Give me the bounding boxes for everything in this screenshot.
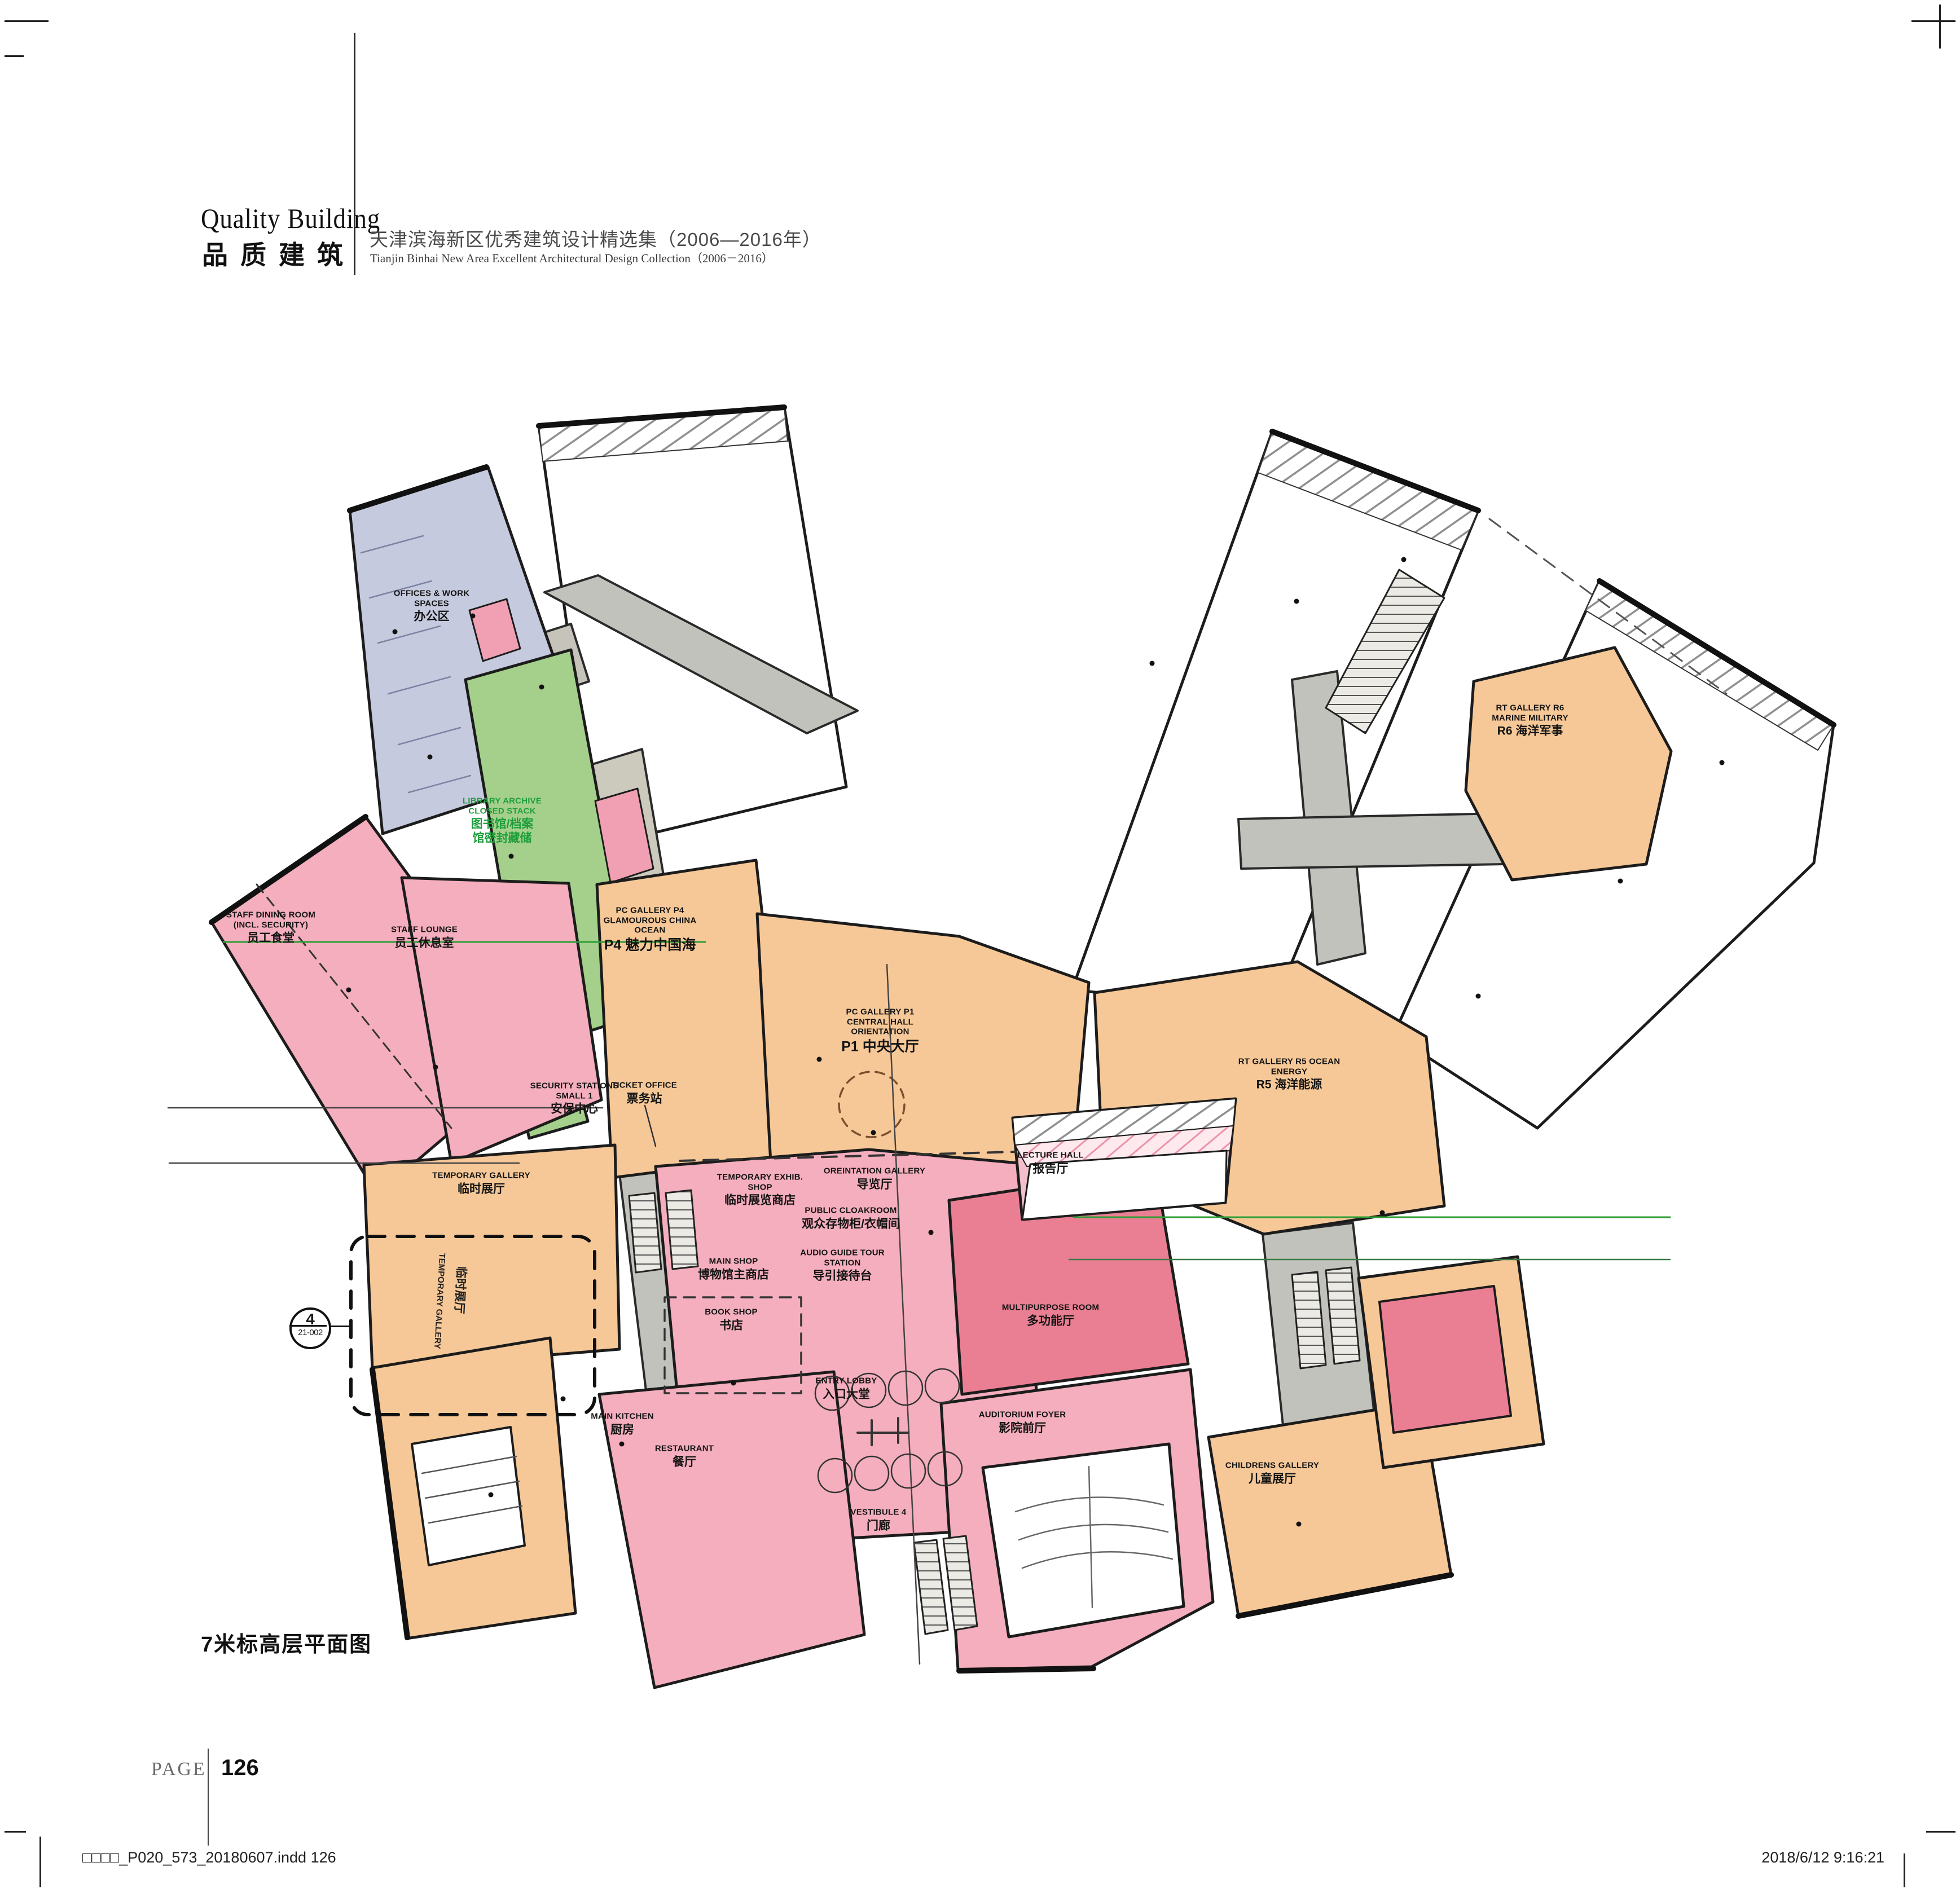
room-label-audio-guide: AUDIO GUIDE TOUR STATION导引接待台 — [800, 1248, 885, 1284]
room-label-ticket-office: TICKET OFFICE票务站 — [612, 1081, 677, 1106]
room-label-rt-gallery-r5: RT GALLERY R5 OCEAN ENERGYR5 海洋能源 — [1238, 1057, 1340, 1093]
room-label-security: SECURITY STATIONS SMALL 1安保中心 — [530, 1081, 619, 1117]
room-label-offices: OFFICES & WORK SPACES办公区 — [394, 589, 469, 624]
callout-code: 21-002 — [292, 1328, 329, 1338]
room-label-main-kitchen: MAIN KITCHEN厨房 — [591, 1412, 654, 1437]
room-label-staff-lounge: STAFF LOUNGE员工休息室 — [391, 925, 458, 950]
detail-callout-marker: 4 21-002 — [289, 1307, 331, 1349]
room-label-pc-gallery-p1: PC GALLERY P1 CENTRAL HALL ORIENTATIONP1… — [841, 1007, 919, 1055]
room-label-temp-gallery: TEMPORARY GALLERY临时展厅 — [432, 1171, 530, 1196]
stair-pocket-left — [412, 1427, 525, 1565]
room-label-auditorium-foyer: AUDITORIUM FOYER影院前厅 — [979, 1410, 1066, 1436]
room-label-book-shop: BOOK SHOP书店 — [705, 1307, 757, 1333]
book-page: Quality Building 品质建筑 天津滨海新区优秀建筑设计精选集（20… — [0, 0, 1960, 1889]
room-label-pc-gallery-p4: PC GALLERY P4 GLAMOUROUS CHINA OCEANP4 魅… — [604, 906, 697, 954]
room-label-childrens: CHILDRENS GALLERY儿童展厅 — [1225, 1461, 1319, 1486]
room-label-library: LIBRARY ARCHIVE CLOSED STACK图书馆/档案 馆密封藏储 — [463, 796, 542, 846]
room-label-cloakroom: PUBLIC CLOAKROOM观众存物柜/衣帽间 — [802, 1206, 900, 1231]
room-label-orientation: OREINTATION GALLERY导览厅 — [824, 1166, 925, 1192]
room-label-vestibule-4: VESTIBULE 4门廊 — [851, 1508, 907, 1533]
room-label-entry-lobby: ENTRY LOBBY入口大堂 — [816, 1376, 877, 1402]
room-label-main-shop: MAIN SHOP博物馆主商店 — [698, 1257, 769, 1282]
room-label-lecture-hall: LECTURE HALL报告厅 — [1017, 1151, 1083, 1176]
room-label-multipurpose: MULTIPURPOSE ROOM多功能厅 — [1002, 1303, 1099, 1328]
rose-rooms-right — [1379, 1286, 1511, 1433]
room-label-temp-gallery-vertical-zh: 临时展厅 — [451, 1266, 471, 1314]
room-label-restaurant: RESTAURANT餐厅 — [655, 1444, 714, 1469]
room-label-staff-dining: STAFF DINING ROOM (INCL. SECURITY)员工食堂 — [226, 910, 315, 946]
room-label-temp-shop: TEMPORARY EXHIB. SHOP临时展览商店 — [717, 1173, 803, 1208]
auditorium-hall — [983, 1444, 1184, 1637]
callout-divider-line — [289, 1325, 327, 1327]
room-label-rt-gallery-r6: RT GALLERY R6 MARINE MILITARYR6 海洋军事 — [1492, 703, 1568, 739]
